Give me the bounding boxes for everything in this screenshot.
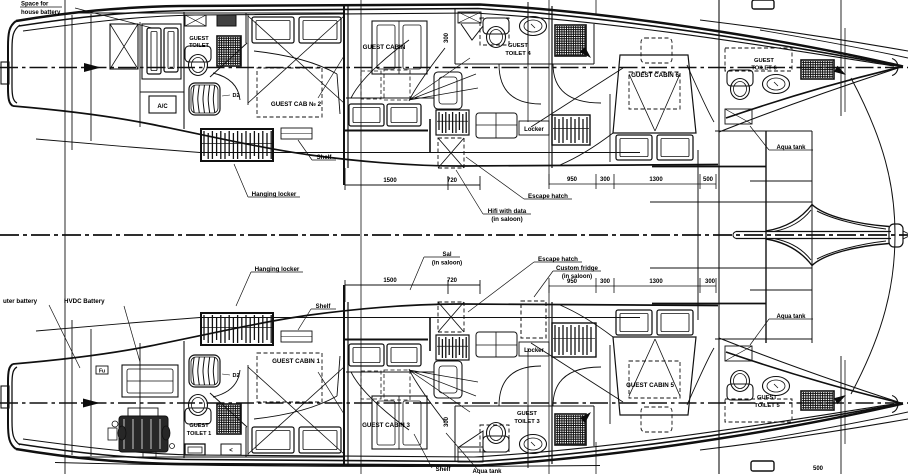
svg-text:1500: 1500 [383, 178, 397, 184]
svg-text:GUEST CAB № 2: GUEST CAB № 2 [271, 101, 322, 108]
svg-text:GUEST: GUEST [189, 423, 209, 429]
svg-text:Shelf: Shelf [436, 467, 452, 473]
svg-text:950: 950 [567, 177, 578, 183]
svg-text:500: 500 [813, 466, 824, 472]
svg-text:(in saloon): (in saloon) [562, 274, 592, 280]
svg-text:uter battery: uter battery [3, 298, 38, 305]
svg-text:A/C: A/C [157, 104, 168, 110]
svg-text:GUEST: GUEST [754, 58, 774, 64]
svg-text:Aqua tank: Aqua tank [472, 469, 502, 474]
svg-text:(in saloon): (in saloon) [491, 216, 522, 223]
svg-text:300: 300 [705, 279, 716, 285]
svg-text:GUEST CABIN 5: GUEST CABIN 5 [626, 382, 674, 389]
svg-text:GUEST: GUEST [757, 395, 777, 401]
svg-text:500: 500 [703, 177, 714, 183]
svg-text:TOILET 3: TOILET 3 [514, 419, 540, 425]
svg-text:TOILET 4: TOILET 4 [505, 51, 531, 57]
svg-text:Locker: Locker [524, 348, 544, 354]
svg-text:720: 720 [447, 178, 458, 184]
svg-text:GUEST: GUEST [508, 43, 528, 49]
svg-text:1500: 1500 [383, 278, 397, 284]
svg-text:TOILET 6: TOILET 6 [751, 66, 777, 72]
svg-text:GUEST CABIN 1: GUEST CABIN 1 [272, 358, 320, 365]
svg-text:Fu: Fu [99, 369, 105, 375]
svg-text:house battery: house battery [21, 10, 61, 16]
svg-text:300: 300 [444, 416, 450, 427]
svg-text:GUEST CABIN 3: GUEST CABIN 3 [362, 422, 410, 429]
svg-text:300: 300 [600, 177, 611, 183]
svg-text:1300: 1300 [649, 177, 663, 183]
svg-text:TOILET 5: TOILET 5 [754, 403, 780, 409]
svg-text:Locker: Locker [524, 127, 544, 133]
svg-text:HVDC Battery: HVDC Battery [64, 298, 105, 305]
svg-text:300: 300 [444, 32, 450, 43]
svg-text:GUEST CABIN 6: GUEST CABIN 6 [631, 72, 679, 79]
svg-text:GUEST: GUEST [517, 411, 537, 417]
svg-text:GUEST: GUEST [189, 36, 209, 42]
svg-text:TOILET: TOILET [189, 43, 209, 49]
svg-text:D2: D2 [232, 93, 239, 99]
svg-text:720: 720 [447, 278, 458, 284]
svg-text:1300: 1300 [649, 279, 663, 285]
svg-text:GUEST CABIN: GUEST CABIN [363, 44, 406, 51]
svg-text:<: < [229, 448, 233, 454]
svg-text:(in saloon): (in saloon) [432, 261, 462, 267]
svg-text:TOILET 1: TOILET 1 [187, 431, 211, 437]
svg-text:300: 300 [600, 279, 611, 285]
